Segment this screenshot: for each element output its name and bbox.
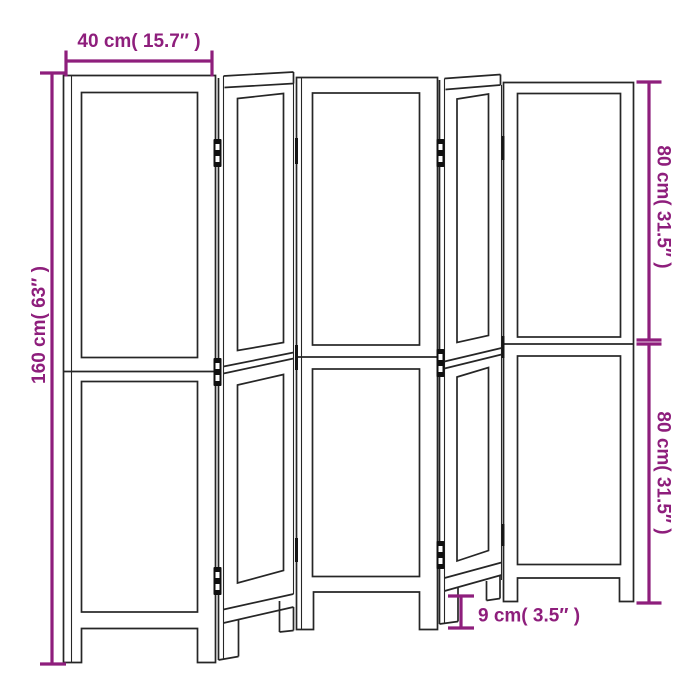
dimension-width-label: 40 cm( 15.7″ ) — [77, 31, 200, 52]
panel-1 — [64, 76, 216, 663]
panel-4-top-edge — [445, 75, 501, 90]
panel-5 — [504, 83, 634, 602]
panel-1-lower-opening — [82, 382, 198, 613]
panel-5-frame — [504, 83, 634, 602]
figure-canvas: 40 cm( 15.7″ ) 160 cm( 63″ ) 80 cm( 31.5… — [0, 0, 700, 700]
dimension-width: 40 cm( 15.7″ ) — [66, 31, 212, 77]
dimension-width-line — [66, 51, 212, 77]
panel-3-frame — [297, 78, 438, 630]
panel-4 — [440, 75, 502, 625]
hinge-icon — [214, 358, 222, 386]
panel-1-frame — [64, 76, 216, 663]
dimension-upper-section: 80 cm( 31.5″ ) — [637, 82, 674, 340]
room-divider-diagram: 40 cm( 15.7″ ) 160 cm( 63″ ) 80 cm( 31.5… — [0, 0, 700, 700]
panel-5-upper-opening — [518, 94, 621, 338]
panel-4-upper-opening — [457, 94, 489, 343]
panel-2-right-leg — [280, 601, 294, 632]
hinge-icon — [214, 139, 222, 167]
dimension-upper-section-label: 80 cm( 31.5″ ) — [653, 145, 674, 268]
dimension-leg-height-line — [448, 596, 474, 628]
panel-4-left-leg — [440, 588, 459, 624]
panel-3-lower-opening — [313, 369, 420, 577]
panel-3 — [297, 78, 438, 630]
hinge-icon — [437, 139, 445, 167]
hinge-icon — [214, 567, 222, 595]
panel-2-left-leg — [219, 620, 239, 660]
dimension-lower-section: 80 cm( 31.5″ ) — [637, 344, 674, 603]
dimension-lower-section-label: 80 cm( 31.5″ ) — [653, 411, 674, 534]
panel-4-lower-opening — [457, 368, 489, 562]
panel-4-bottom-rail — [445, 563, 502, 592]
panel-5-lower-opening — [518, 356, 621, 565]
panel-2-bottom-rail — [224, 594, 294, 623]
panel-2-top-edge — [224, 72, 294, 88]
dimension-total-height: 160 cm( 63″ ) — [29, 73, 66, 664]
panel-2-upper-opening — [238, 94, 284, 351]
hinge-icon — [437, 541, 445, 569]
panel-4-mid-seam — [445, 348, 502, 369]
panel-1-upper-opening — [82, 93, 198, 358]
panel-2-mid-seam — [224, 353, 294, 374]
hinge-icon — [437, 349, 445, 377]
dimension-leg-height-label: 9 cm( 3.5″ ) — [478, 606, 580, 627]
dimension-total-height-label: 160 cm( 63″ ) — [29, 266, 50, 384]
panel-3-upper-opening — [313, 93, 420, 345]
panel-2-lower-opening — [238, 375, 284, 584]
panel-2 — [219, 72, 294, 660]
